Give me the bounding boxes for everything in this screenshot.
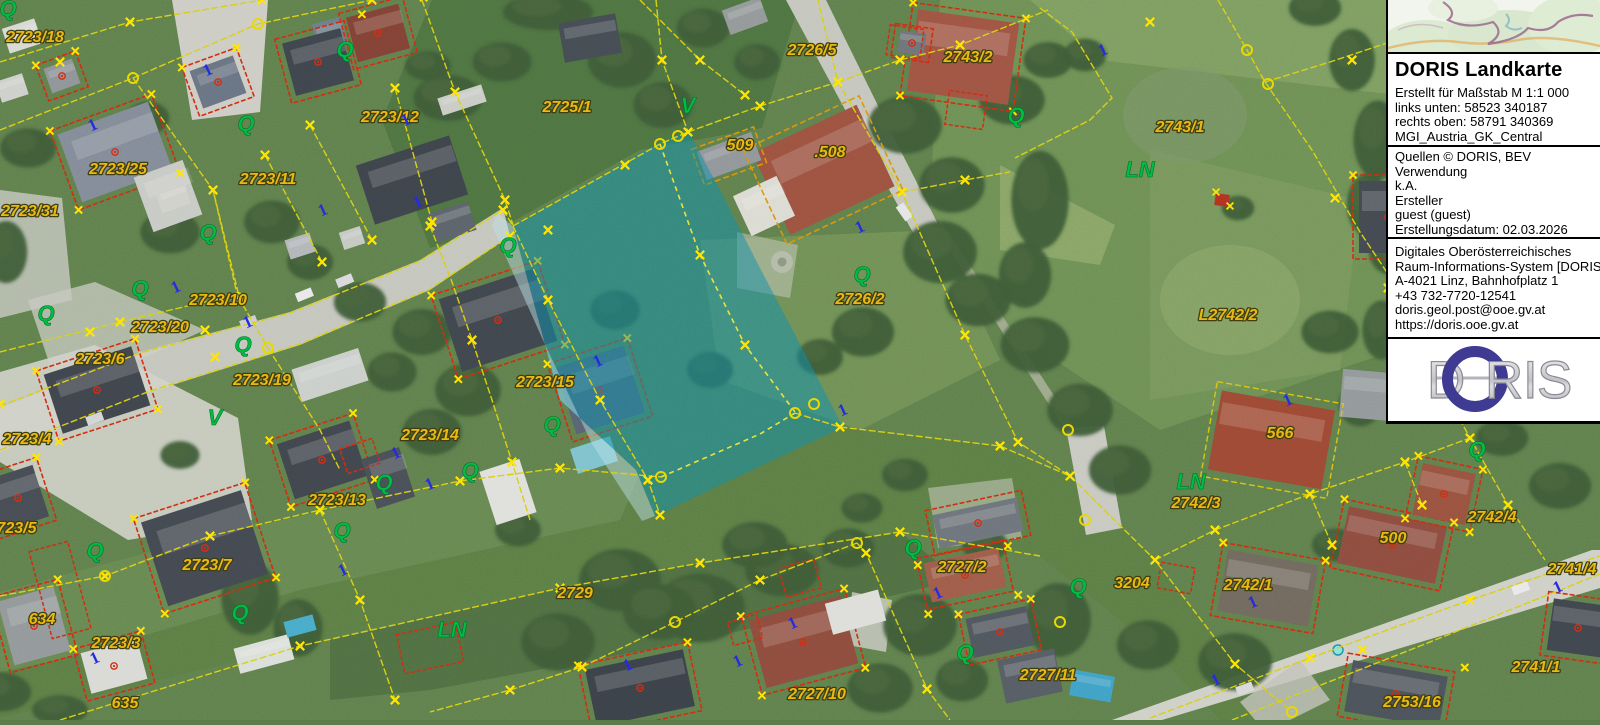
svg-text:I: I xyxy=(1523,351,1538,410)
svg-text:R: R xyxy=(1485,351,1523,410)
svg-text:S: S xyxy=(1537,351,1572,410)
